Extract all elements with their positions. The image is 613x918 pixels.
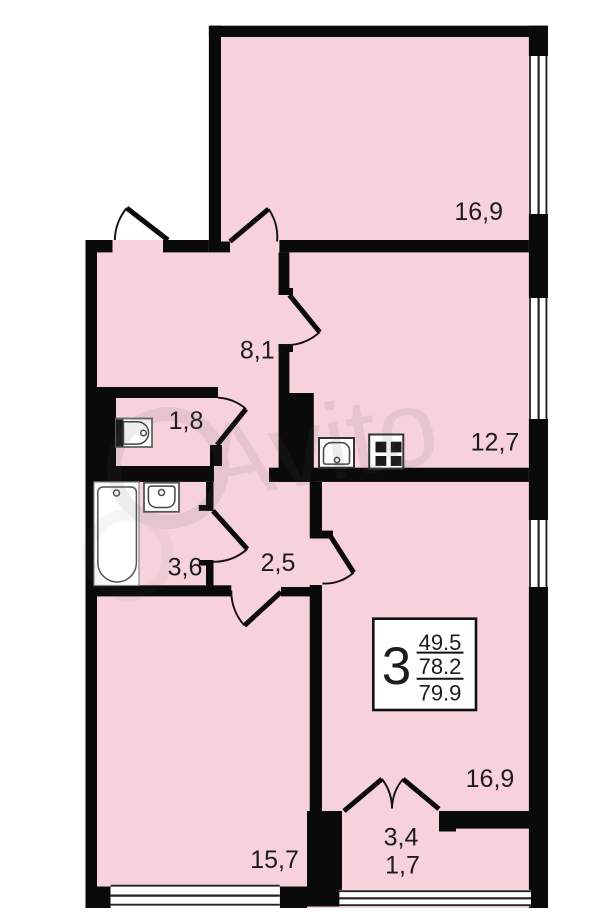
svg-text:12,7: 12,7 bbox=[471, 429, 520, 457]
svg-text:8,1: 8,1 bbox=[240, 337, 275, 365]
svg-text:79.9: 79.9 bbox=[419, 681, 462, 706]
svg-text:1,7: 1,7 bbox=[385, 852, 420, 880]
svg-text:16,9: 16,9 bbox=[454, 198, 503, 226]
svg-text:16,9: 16,9 bbox=[466, 765, 515, 793]
svg-text:3,4: 3,4 bbox=[384, 824, 419, 852]
svg-text:3: 3 bbox=[382, 637, 411, 696]
svg-text:78.2: 78.2 bbox=[419, 654, 462, 679]
svg-text:2,5: 2,5 bbox=[261, 549, 296, 577]
svg-text:15,7: 15,7 bbox=[250, 846, 299, 874]
svg-text:49.5: 49.5 bbox=[419, 630, 462, 655]
